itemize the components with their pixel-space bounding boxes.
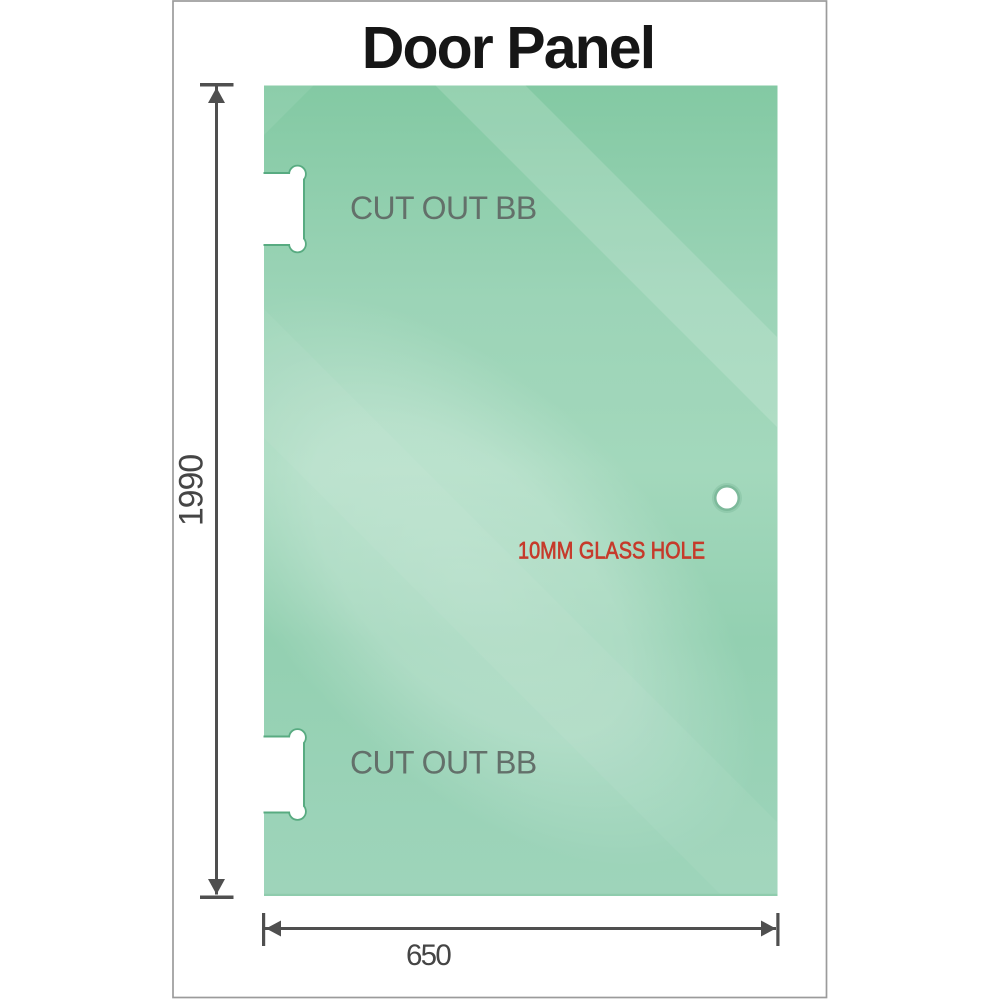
svg-text:10MM GLASS HOLE: 10MM GLASS HOLE — [518, 537, 705, 564]
svg-text:650: 650 — [406, 939, 451, 972]
svg-text:Door Panel: Door Panel — [362, 15, 654, 81]
svg-text:CUT OUT BB: CUT OUT BB — [350, 745, 537, 781]
svg-text:CUT OUT BB: CUT OUT BB — [350, 190, 537, 226]
svg-text:1990: 1990 — [173, 455, 211, 526]
